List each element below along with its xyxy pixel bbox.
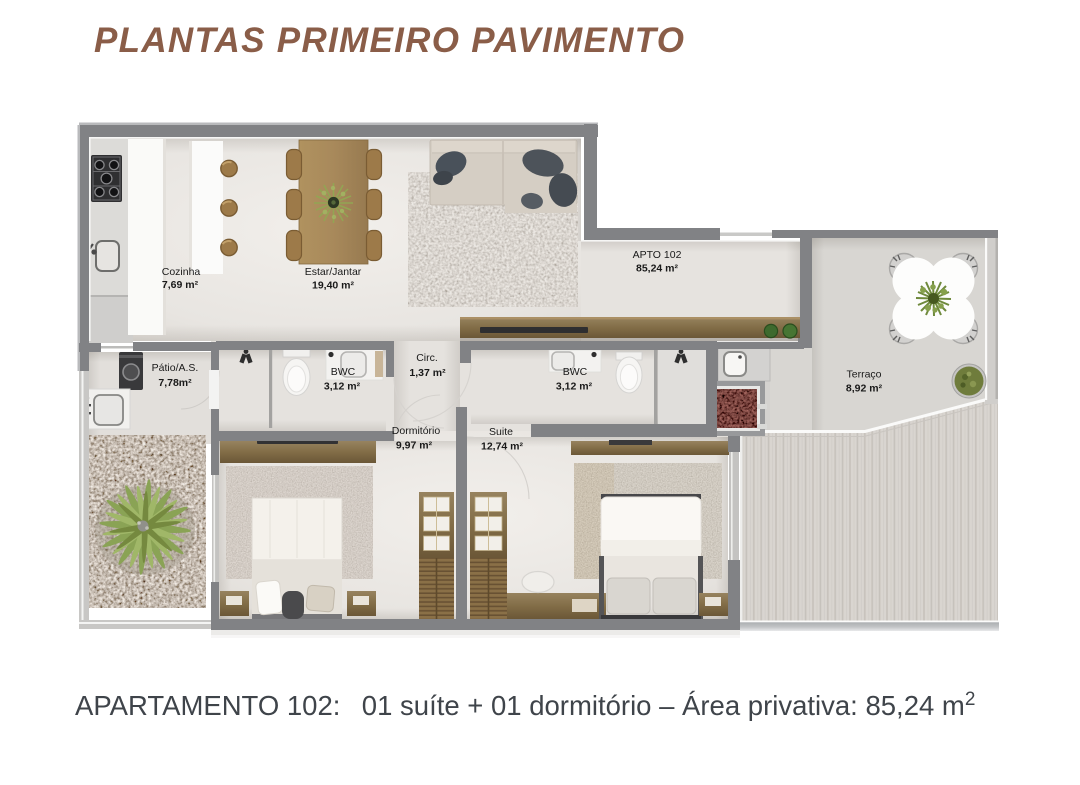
svg-text:BWC: BWC bbox=[331, 366, 356, 378]
svg-text:Dormitório: Dormitório bbox=[392, 425, 441, 437]
svg-text:3,12 m²: 3,12 m² bbox=[324, 381, 361, 393]
svg-text:85,24 m²: 85,24 m² bbox=[636, 263, 679, 275]
svg-text:APTO 102: APTO 102 bbox=[633, 249, 682, 261]
svg-text:19,40 m²: 19,40 m² bbox=[312, 280, 355, 292]
svg-text:Estar/Jantar: Estar/Jantar bbox=[305, 266, 362, 278]
svg-text:12,74 m²: 12,74 m² bbox=[481, 441, 524, 453]
svg-text:1,37 m²: 1,37 m² bbox=[409, 367, 446, 379]
svg-text:Cozinha: Cozinha bbox=[162, 266, 201, 278]
svg-text:8,92 m²: 8,92 m² bbox=[846, 383, 883, 395]
svg-text:Pátio/A.S.: Pátio/A.S. bbox=[152, 362, 199, 374]
svg-text:9,97 m²: 9,97 m² bbox=[396, 440, 433, 452]
svg-text:BWC: BWC bbox=[563, 366, 588, 378]
svg-text:Terraço: Terraço bbox=[846, 369, 881, 381]
svg-text:Suite: Suite bbox=[489, 426, 513, 438]
svg-text:Circ.: Circ. bbox=[416, 352, 438, 364]
svg-text:7,69 m²: 7,69 m² bbox=[162, 279, 199, 291]
svg-text:7,78m²: 7,78m² bbox=[158, 377, 192, 389]
svg-text:3,12 m²: 3,12 m² bbox=[556, 381, 593, 393]
